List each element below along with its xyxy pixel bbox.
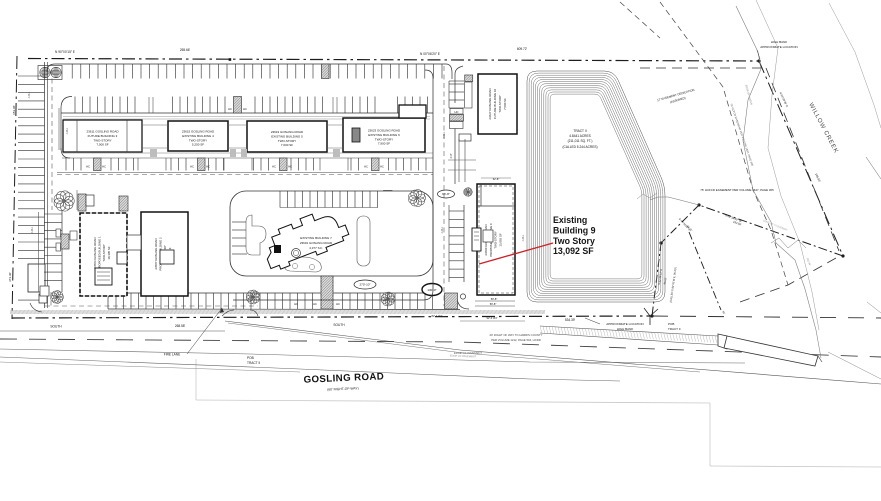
svg-text:7,000 SF: 7,000 SF — [96, 143, 108, 147]
svg-text:HIGH BANK: HIGH BANK — [617, 327, 634, 331]
svg-text:130'-0": 130'-0" — [427, 288, 436, 292]
svg-text:HC: HC — [102, 165, 106, 169]
svg-text:7,900 SF: 7,900 SF — [378, 142, 390, 146]
svg-text:2'-0": 2'-0" — [450, 153, 453, 158]
svg-text:POB: POB — [247, 356, 254, 360]
svg-text:23587 GOSLING ROAD: 23587 GOSLING ROAD — [154, 238, 158, 269]
svg-text:HIGH BANK: HIGH BANK — [771, 40, 788, 44]
svg-text:HC: HC — [190, 165, 194, 169]
svg-text:10,305 SF: 10,305 SF — [107, 246, 111, 260]
svg-text:153.96': 153.96' — [12, 105, 16, 115]
svg-text:SOUTH: SOUTH — [50, 325, 62, 329]
svg-text:Existing: Existing — [553, 215, 587, 225]
svg-text:SOUTH: SOUTH — [333, 323, 345, 327]
svg-text:265.66': 265.66' — [180, 48, 191, 52]
svg-text:FUTURE BUILDING 3: FUTURE BUILDING 3 — [88, 134, 118, 138]
svg-text:7,500 SF: 7,500 SF — [503, 98, 507, 110]
svg-text:Two Story: Two Story — [553, 236, 595, 246]
svg-text:23615 GOSLING ROAD: 23615 GOSLING ROAD — [182, 130, 215, 134]
svg-text:HC: HC — [206, 165, 210, 169]
svg-text:TWO-STORY: TWO-STORY — [278, 139, 296, 143]
svg-text:4,377 S.F.: 4,377 S.F. — [309, 246, 323, 250]
svg-text:HC: HC — [380, 165, 384, 169]
svg-text:APPROXIMATE LOCATION: APPROXIMATE LOCATION — [760, 45, 797, 49]
svg-text:23601 GOSLING ROAD: 23601 GOSLING ROAD — [300, 241, 333, 245]
svg-text:TWO-STORY: TWO-STORY — [375, 137, 393, 141]
svg-text:J-38.1: J-38.1 — [66, 127, 69, 134]
svg-text:50'-8": 50'-8" — [490, 302, 497, 306]
svg-text:EXISTING BUILDING 4: EXISTING BUILDING 4 — [182, 134, 214, 138]
svg-text:HC: HC — [364, 165, 368, 169]
svg-text:EXISTING BUILDING 6: EXISTING BUILDING 6 — [368, 133, 400, 137]
svg-text:EXISTING BUILDING 5: EXISTING BUILDING 5 — [271, 134, 303, 138]
svg-text:PROPOSED BUILDING 1: PROPOSED BUILDING 1 — [98, 236, 102, 270]
svg-text:J-38.1: J-38.1 — [522, 234, 525, 241]
svg-text:HC: HC — [228, 107, 232, 111]
svg-text:270'-10": 270'-10" — [360, 283, 371, 287]
svg-text:609.72': 609.72' — [517, 47, 528, 51]
svg-text:50'-8": 50'-8" — [491, 297, 498, 301]
svg-text:23627 GOSLING ROAD: 23627 GOSLING ROAD — [488, 88, 492, 119]
svg-text:TWO-STORY: TWO-STORY — [93, 138, 111, 142]
svg-text:66'-8": 66'-8" — [442, 192, 450, 196]
svg-text:J-38.1: J-38.1 — [31, 226, 34, 233]
svg-text:268.58': 268.58' — [175, 324, 186, 328]
svg-text:HC: HC — [313, 302, 317, 306]
svg-text:HC: HC — [455, 110, 459, 114]
svg-text:APPROXIMATE LOCATION: APPROXIMATE LOCATION — [606, 322, 643, 326]
svg-text:HC: HC — [86, 165, 90, 169]
svg-text:TWO-STORY: TWO-STORY — [498, 95, 502, 113]
svg-text:23623 GOSLING ROAD: 23623 GOSLING ROAD — [368, 129, 401, 133]
svg-text:373.30': 373.30' — [8, 272, 12, 282]
svg-text:62'-8": 62'-8" — [493, 177, 500, 181]
svg-text:20' RIGHT OF WAY TO HARRIS COU: 20' RIGHT OF WAY TO HARRIS COUNTY — [489, 333, 542, 337]
svg-text:(211,011 SQ. FT.): (211,011 SQ. FT.) — [568, 139, 593, 143]
svg-text:PER VOLUME 1212, PAGE 504, HCD: PER VOLUME 1212, PAGE 504, HCDR — [491, 338, 541, 342]
svg-text:5,250 SF: 5,250 SF — [192, 143, 204, 147]
svg-text:HC: HC — [336, 302, 340, 306]
svg-text:N 90°00’15” E: N 90°00’15” E — [55, 50, 75, 54]
svg-text:534.39': 534.39' — [565, 318, 576, 322]
svg-text:23611 GOSLING ROAD: 23611 GOSLING ROAD — [86, 130, 119, 134]
svg-text:J-38.1: J-38.1 — [443, 131, 446, 138]
svg-text:23583 GOSLING ROAD: 23583 GOSLING ROAD — [93, 237, 97, 268]
svg-text:FUTURE BUILDING 10: FUTURE BUILDING 10 — [493, 89, 497, 120]
svg-text:HC: HC — [272, 165, 276, 169]
svg-text:4.8441 ACRES: 4.8441 ACRES — [569, 134, 590, 138]
svg-text:82'-4 3/4": 82'-4 3/4" — [432, 314, 443, 318]
svg-text:POB: POB — [668, 322, 674, 326]
svg-text:13,092 SF: 13,092 SF — [553, 246, 594, 256]
svg-text:TRACT II: TRACT II — [573, 129, 586, 133]
svg-text:J-38.1: J-38.1 — [28, 91, 31, 98]
svg-text:(CALLED 5.244 ACRES): (CALLED 5.244 ACRES) — [562, 145, 597, 149]
svg-text:13,092 SF: 13,092 SF — [498, 233, 502, 247]
svg-text:TWO-STORY: TWO-STORY — [102, 244, 106, 262]
svg-text:HC: HC — [243, 107, 247, 111]
svg-text:75' HCFCD EASEMENT PER VOLUME: 75' HCFCD EASEMENT PER VOLUME 1647, PAGE… — [700, 188, 774, 192]
svg-text:23619 GOSLING ROAD: 23619 GOSLING ROAD — [271, 130, 304, 134]
svg-text:Building 9: Building 9 — [553, 225, 596, 235]
svg-text:TRACT II: TRACT II — [247, 361, 260, 365]
svg-text:HC: HC — [288, 165, 292, 169]
svg-text:FIRE LANE: FIRE LANE — [164, 353, 180, 357]
svg-text:HC: HC — [294, 302, 298, 306]
svg-text:N 00°06’20” E: N 00°06’20” E — [420, 52, 440, 56]
svg-text:TWO-STORY: TWO-STORY — [494, 231, 498, 249]
svg-text:92'-4 3/4": 92'-4 3/4" — [487, 316, 498, 320]
svg-text:TRACT II: TRACT II — [668, 327, 681, 331]
svg-text:TWO-STORY: TWO-STORY — [189, 138, 207, 142]
svg-text:J-38.1: J-38.1 — [441, 226, 444, 233]
svg-text:EXISTING BUILDING 7: EXISTING BUILDING 7 — [300, 236, 332, 240]
svg-text:7,000 SF: 7,000 SF — [281, 143, 293, 147]
